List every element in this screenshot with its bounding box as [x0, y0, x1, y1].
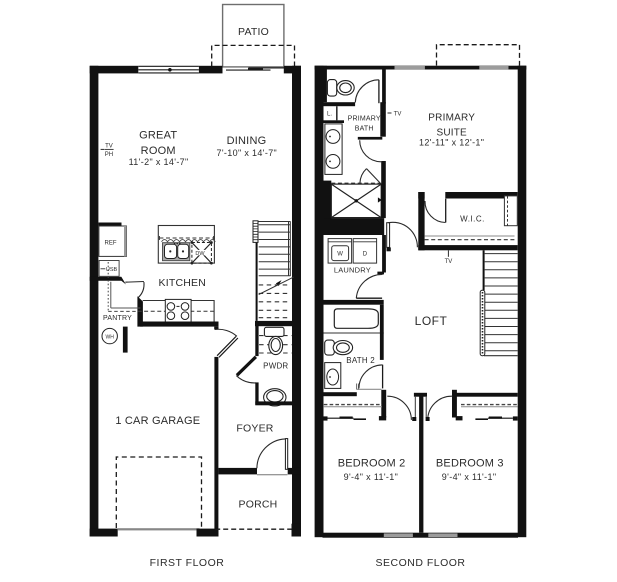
svg-text:BATH: BATH	[355, 126, 374, 133]
svg-text:7'-10" x 14'-7": 7'-10" x 14'-7"	[216, 148, 277, 158]
svg-text:D: D	[363, 251, 368, 257]
svg-text:FOYER: FOYER	[236, 423, 273, 435]
svg-text:PANTRY: PANTRY	[103, 315, 132, 322]
svg-text:ROOM: ROOM	[141, 145, 176, 157]
svg-text:PWDR: PWDR	[263, 361, 288, 370]
svg-text:PORCH: PORCH	[239, 498, 278, 510]
svg-text:9'-4" x 11'-1": 9'-4" x 11'-1"	[344, 472, 399, 482]
svg-text:11'-2" x 14'-7": 11'-2" x 14'-7"	[129, 157, 189, 167]
svg-text:TV: TV	[105, 144, 113, 150]
svg-text:DINING: DINING	[227, 135, 267, 147]
svg-text:L.: L.	[327, 112, 332, 118]
svg-text:BEDROOM 3: BEDROOM 3	[436, 458, 504, 470]
svg-text:LOFT: LOFT	[415, 314, 448, 328]
svg-text:1 CAR GARAGE: 1 CAR GARAGE	[115, 415, 200, 427]
svg-text:LAUNDRY: LAUNDRY	[334, 265, 371, 274]
svg-text:SECOND FLOOR: SECOND FLOOR	[375, 557, 465, 569]
svg-text:PRIMARY: PRIMARY	[428, 112, 475, 123]
svg-text:GREAT: GREAT	[139, 129, 177, 141]
svg-text:TV: TV	[445, 259, 453, 265]
svg-text:REF: REF	[105, 241, 117, 247]
svg-text:FIRST FLOOR: FIRST FLOOR	[150, 557, 225, 569]
svg-text:WH: WH	[106, 334, 115, 340]
svg-text:DW: DW	[195, 251, 205, 257]
svg-text:TV: TV	[394, 112, 402, 118]
svg-text:BEDROOM 2: BEDROOM 2	[338, 458, 406, 470]
svg-text:KITCHEN: KITCHEN	[159, 277, 207, 289]
svg-text:PRIMARY: PRIMARY	[348, 116, 381, 123]
svg-text:W: W	[337, 251, 343, 257]
svg-text:12'-11" x 12'-1": 12'-11" x 12'-1"	[419, 137, 484, 147]
svg-text:BATH 2: BATH 2	[346, 356, 375, 365]
svg-text:9'-4" x 11'-1": 9'-4" x 11'-1"	[442, 472, 497, 482]
svg-text:USB: USB	[106, 267, 118, 273]
svg-text:W.I.C.: W.I.C.	[460, 214, 485, 223]
svg-text:PATIO: PATIO	[238, 26, 269, 38]
svg-text:PH: PH	[105, 152, 113, 158]
